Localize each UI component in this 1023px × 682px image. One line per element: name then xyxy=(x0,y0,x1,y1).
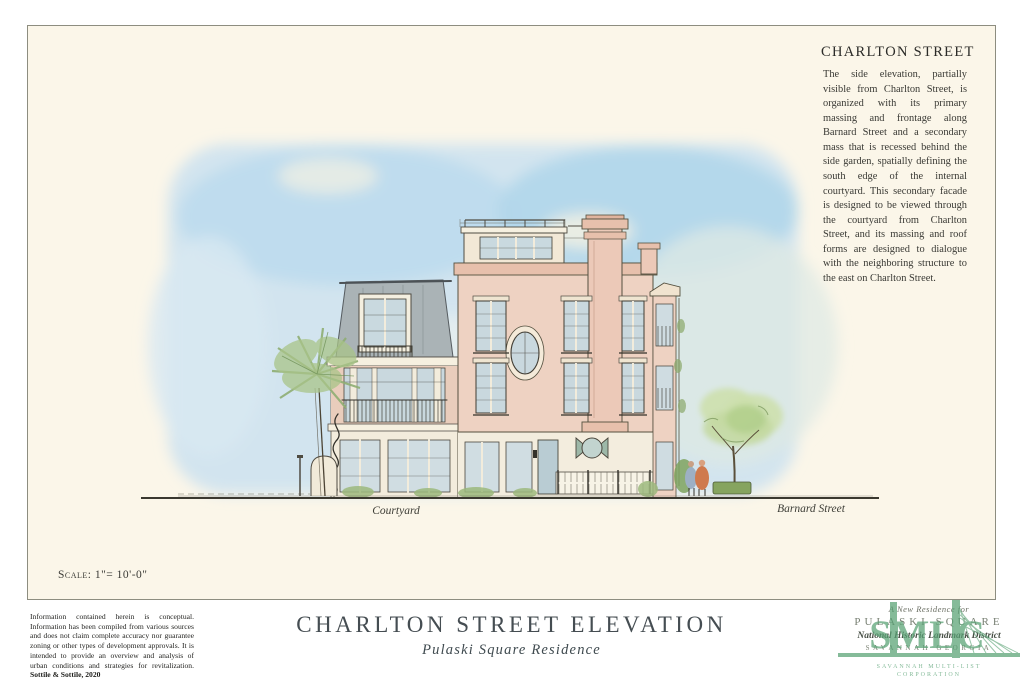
scale-note: Scale: 1"= 10'-0" xyxy=(58,569,148,581)
courtyard-door xyxy=(538,440,558,494)
panel-description: The side elevation, partially visible fr… xyxy=(823,68,967,286)
main-ground-floor xyxy=(458,432,653,498)
sheet-panel: CHARLTON STREET The side elevation, part… xyxy=(27,25,996,600)
dormer-window xyxy=(355,294,415,360)
smlc-initials: SMLC xyxy=(869,612,985,657)
panel-heading: CHARLTON STREET xyxy=(821,44,971,61)
main-cornice xyxy=(454,263,657,275)
wall-lantern xyxy=(533,450,537,458)
smlc-watermark-logo: SMLC SAVANNAH MULTI-LIST CORPORATION xyxy=(838,600,1020,682)
project-logo-block: A New Residence for PULASKI SQUARE Natio… xyxy=(838,600,1020,682)
label-courtyard: Courtyard xyxy=(356,505,436,517)
oculus-window xyxy=(506,326,544,380)
smlc-caption-2: CORPORATION xyxy=(897,672,961,678)
loggia-level xyxy=(331,366,458,424)
presentation-sheet: CHARLTON STREET The side elevation, part… xyxy=(0,0,1023,682)
disclaimer-credit: Sottile & Sottile, 2020 xyxy=(30,670,100,679)
smlc-caption-1: SAVANNAH MULTI-LIST xyxy=(877,664,982,670)
ground-line xyxy=(141,496,879,498)
belt-course xyxy=(328,424,461,431)
hedge-planter xyxy=(713,482,751,494)
mansard-wing xyxy=(327,280,461,498)
wing-ground-windows xyxy=(340,440,450,492)
secondary-chimney xyxy=(638,243,660,274)
loggia-iron-rail xyxy=(344,400,445,422)
label-barnard-street: Barnard Street xyxy=(746,503,876,515)
